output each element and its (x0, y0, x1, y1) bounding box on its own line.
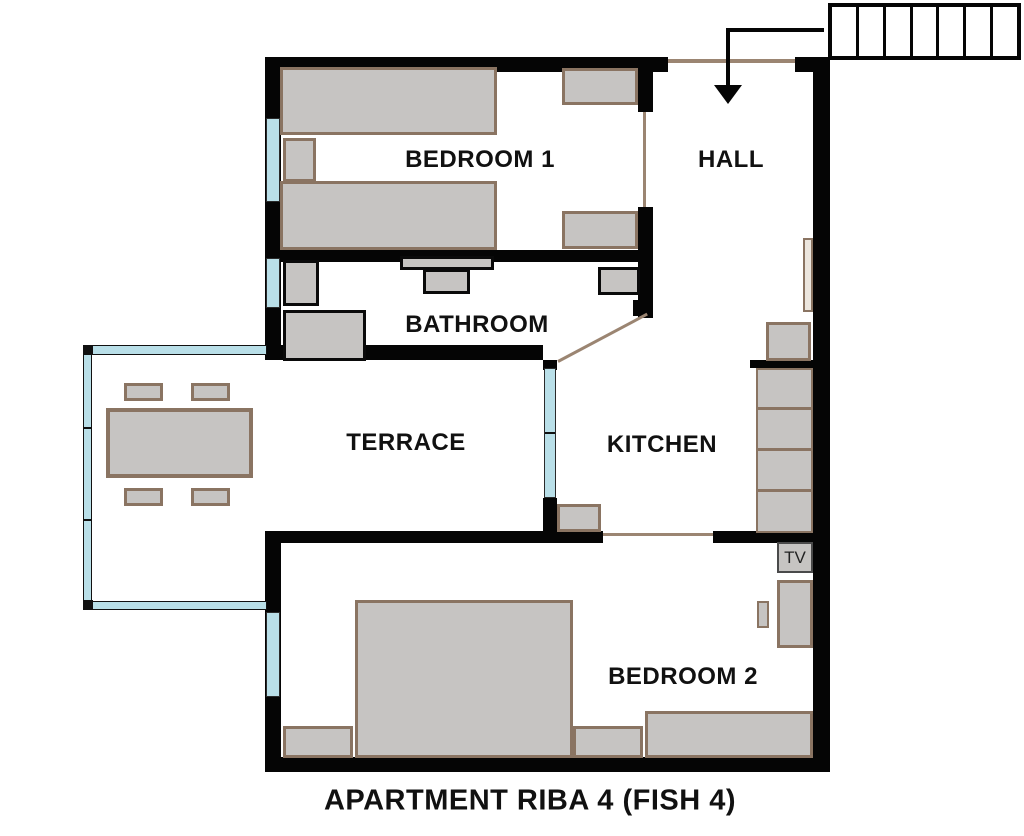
stair-step (910, 7, 937, 56)
stair-step (883, 7, 910, 56)
staircase (828, 3, 1021, 60)
stair-step (963, 7, 990, 56)
stair-step (990, 7, 1017, 56)
stair-step (856, 7, 883, 56)
stair-step (832, 7, 856, 56)
entrance-layer (0, 0, 1024, 836)
entrance-arrow-horizontal (726, 28, 824, 32)
plan-title: APARTMENT RIBA 4 (FISH 4) (324, 785, 736, 818)
floor-plan: BEDROOM 1 HALL BATHROOM TERRACE KITCHEN (0, 0, 1024, 836)
entrance-arrow-vertical (726, 28, 730, 88)
entrance-arrow-head-icon (714, 85, 742, 104)
stair-step (936, 7, 963, 56)
